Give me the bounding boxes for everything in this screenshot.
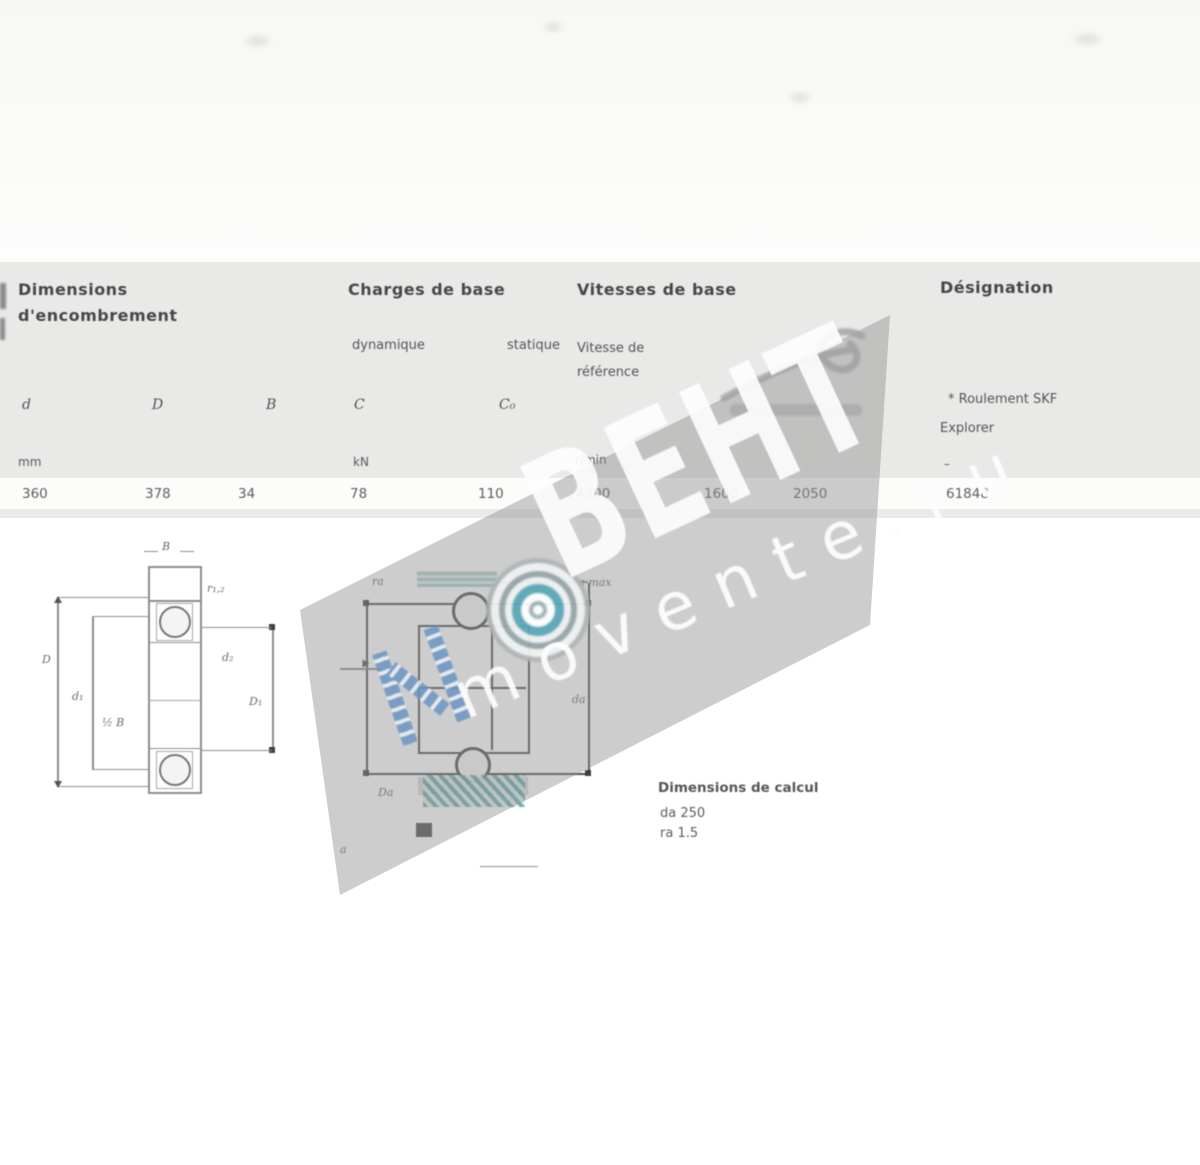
value-d: 360 xyxy=(22,486,48,502)
scan-edge-artifact xyxy=(0,318,5,340)
symbol-D: D xyxy=(152,397,163,413)
corner-mark xyxy=(585,770,591,776)
bearing-race-line xyxy=(148,600,200,602)
dim-label-d2: d₂ xyxy=(222,651,233,664)
dim-line xyxy=(180,551,194,552)
subheader-vitesse-reference-line1: Vitesse de xyxy=(577,341,644,356)
page-top-margin xyxy=(0,0,1200,262)
dim-label-B: B xyxy=(162,540,170,553)
symbol-d: d xyxy=(22,397,31,413)
calc-line-da: da 250 xyxy=(660,806,705,821)
unit-kN: kN xyxy=(353,455,369,469)
column-group-dimensions-title-line2: d'encombrement xyxy=(18,306,178,325)
scan-smudge xyxy=(1072,33,1102,45)
bearing-race-line xyxy=(148,642,200,643)
symbol-B: B xyxy=(266,397,276,413)
unit-mm: mm xyxy=(18,455,41,469)
dim-line-right xyxy=(272,627,274,750)
scan-smudge xyxy=(245,35,271,47)
dim-line-d xyxy=(92,617,94,769)
arrowhead xyxy=(54,596,62,603)
value-C: 78 xyxy=(350,486,367,502)
bearing-race-line xyxy=(148,748,200,749)
column-group-dimensions-title: Dimensions xyxy=(18,280,128,299)
dim-extension xyxy=(92,616,150,617)
ball-bottom xyxy=(159,754,191,786)
dim-extension xyxy=(57,786,149,787)
dim-line-D xyxy=(57,598,59,787)
ball-top xyxy=(159,606,191,638)
scan-smudge xyxy=(788,92,812,103)
datasheet-page: Dimensions d'encombrement Charges de bas… xyxy=(0,0,1200,1165)
dim-label-half-B: ½ B xyxy=(102,716,124,729)
dim-extension xyxy=(57,597,149,598)
column-group-designation-title: Désignation xyxy=(940,278,1054,297)
bearing-mid-line xyxy=(148,700,200,701)
dim-label-D: D xyxy=(42,653,51,666)
subheader-statique: statique xyxy=(507,338,560,353)
value-D: 378 xyxy=(145,486,171,502)
dim-extension xyxy=(202,750,272,751)
column-group-charges-title: Charges de base xyxy=(348,280,505,299)
arrowhead xyxy=(54,781,62,788)
symbol-C: C xyxy=(354,397,365,413)
designation-note-line1: * Roulement SKF xyxy=(948,392,1057,407)
dim-extension xyxy=(92,769,150,770)
dim-label-r12: r₁,₂ xyxy=(207,582,225,595)
dim-label-D1: D₁ xyxy=(249,695,262,708)
dim-line-bottom xyxy=(480,866,538,867)
symbol-C0: C₀ xyxy=(499,397,515,413)
value-C0: 110 xyxy=(478,486,504,502)
dim-extension xyxy=(202,627,272,628)
value-B: 34 xyxy=(238,486,255,502)
calc-heading: Dimensions de calcul xyxy=(658,780,818,796)
dim-line xyxy=(144,551,158,552)
subheader-dynamique: dynamique xyxy=(352,338,425,353)
scan-edge-artifact xyxy=(0,283,6,309)
calc-line-ra: ra 1.5 xyxy=(660,826,698,841)
dim-label-d1: d₁ xyxy=(72,690,83,703)
scan-smudge xyxy=(543,22,563,32)
column-group-vitesses-title: Vitesses de base xyxy=(577,280,737,299)
